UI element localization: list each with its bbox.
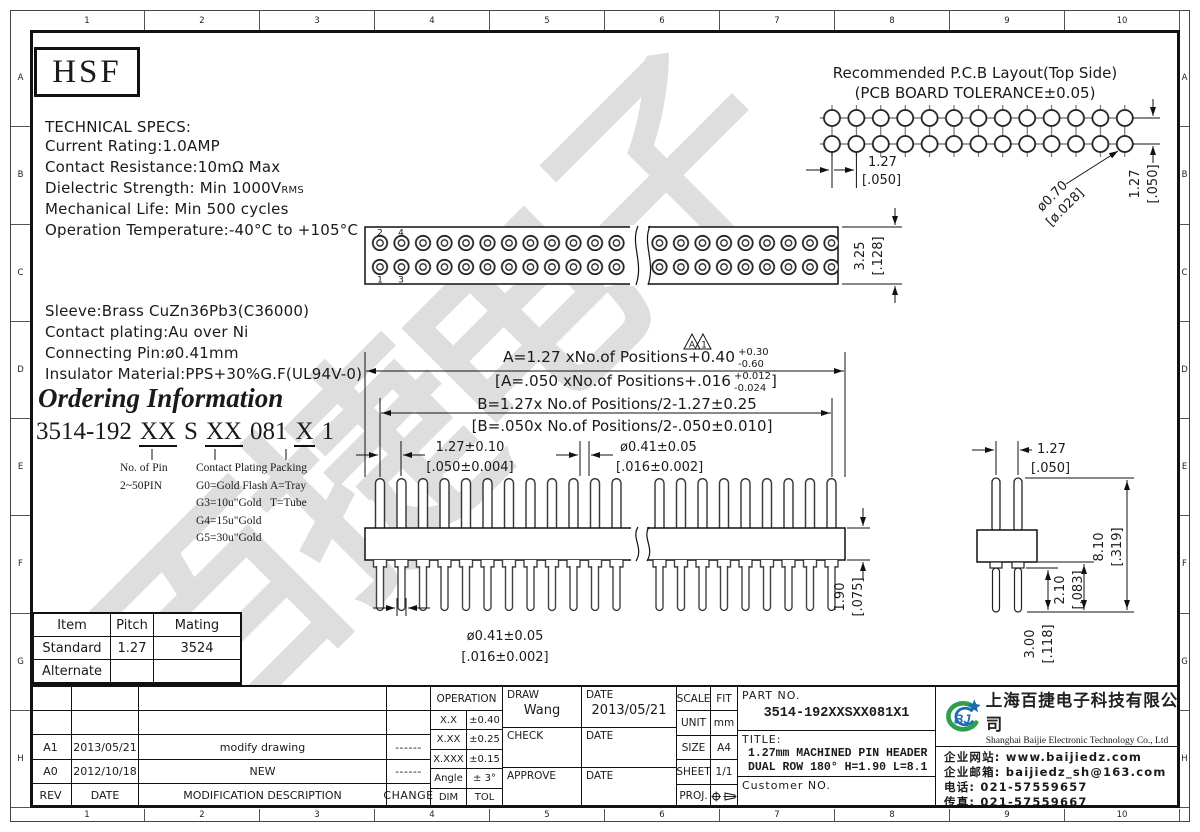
ruler-number: 5 [490,809,605,821]
side-total-dim-inch: [.319] [1110,527,1125,566]
material-line: Sleeve:Brass CuZn36Pb3(C36000) [45,301,362,322]
material-line: Connecting Pin:ø0.41mm [45,343,362,364]
part-no-value: 3514-192XXSXX081X1 [738,706,935,721]
tolerance-header: OPERATION [431,687,502,711]
ruler-number: 7 [720,809,835,821]
pcb-vpitch-dim: 1.27 [1128,170,1143,199]
tolerance-row: X.XX ±0.25 [431,730,502,749]
projection-symbol [711,785,737,808]
mating-header: Pitch [111,614,154,637]
ruler-letter: B [1180,127,1189,224]
revision-table: A1 2013/05/21 modify drawing ------ A0 2… [30,687,430,808]
ruler-number: 2 [145,11,260,30]
technical-specs-title: TECHNICAL SPECS: [45,118,358,137]
ordering-option: G3=10u"Gold [196,495,267,513]
signoff-block: DRAWWang DATE2013/05/21 CHECK DATE APPRO… [502,687,676,808]
hsf-logo-box: HSF [34,47,140,97]
date-label: DATE [586,770,613,782]
front-dia2-dim-inch: [.016±0.002] [461,650,548,665]
ruler-number: 8 [835,11,950,30]
customer-label: Customer NO. [742,779,831,792]
ruler-number: 3 [260,11,375,30]
side-pitch-dim: 1.27 [1037,442,1066,457]
hsf-logo-text: HSF [52,54,122,91]
formula-b-mm: B=1.27x No.of Positions/2-1.27±0.25 [477,395,757,413]
tolerance-row: DIM TOL [431,789,502,808]
part-title-line2: DUAL ROW 180° H=1.90 L=8.1 [748,761,927,775]
plan-height-dim: 3.25 [853,242,868,271]
part-number-row: PART NO. 3514-192XXSXX081X1 [738,687,935,731]
ruler-number: 8 [835,809,950,821]
front-pins-top-left [369,478,627,528]
pin-label-2: 2 [377,229,383,239]
company-contact-line: 电话: 021-57559657 [944,780,1180,795]
pn-code: 081 [250,418,288,445]
ruler-number: 4 [375,11,490,30]
ordering-option: G0=Gold Flash [196,478,267,496]
pin-label-4: 4 [398,229,404,239]
pcb-title-line2: (PCB BOARD TOLERANCE±0.05) [855,84,1096,102]
info-row: SIZE A4 [677,736,737,760]
spec-line: Mechanical Life: Min 500 cycles [45,200,358,221]
company-header: BJ 上海百捷电子科技有限公司 Shanghai Baijie Electron… [936,687,1180,747]
ruler-number: 1 [30,11,145,30]
pn-base: 3514-192 [36,418,132,445]
ruler-number: 6 [605,11,720,30]
company-logo-text: BJ [954,711,971,726]
formula-a-inch-sub: -0.024 [734,383,766,394]
check-label: CHECK [507,730,543,742]
pcb-vpitch-dim-inch: [.050] [1146,164,1161,203]
plan-view: 2 4 1 3 3.25 [.128] [365,208,902,303]
mating-header: Item [34,614,111,637]
pcb-hole-grid [820,105,1138,157]
pcb-hole-dim-group: ø0.70 [ø.028] [1031,174,1087,230]
revision-row: A1 2013/05/21 modify drawing ------ [30,735,430,759]
ruler-number: 1 [30,809,145,821]
ruler-right: ABCDEFGH [1180,30,1189,808]
date-label: DATE [586,730,613,742]
ordering-option: T=Tube [270,495,307,513]
front-pitch-dim: 1.27±0.10 [436,440,505,455]
front-view: 1.27±0.10 [.050±0.004] ø0.41±0.05 [.016±… [356,440,870,665]
pcb-title-line1: Recommended P.C.B Layout(Top Side) [833,64,1117,82]
front-body-dim-inch: [.075] [851,577,866,616]
mating-row: Standard 1.27 3524 [34,637,240,660]
revision-row: REV DATE MODIFICATION DESCRIPTION CHANGE [30,784,430,808]
ordering-option: G4=15u"Gold [196,513,267,531]
signoff-row-draw: DRAWWang DATE2013/05/21 [503,687,676,728]
front-body-dim: 1.90 [833,583,848,612]
ruler-letter: F [1180,516,1189,613]
mating-header: Mating [154,614,240,637]
mating-table: Item Pitch Mating Standard 1.27 3524 Alt… [32,612,242,685]
ordering-option: No. of Pin [120,460,168,478]
ordering-option: Packing [270,460,307,478]
pcb-layout-view: Recommended P.C.B Layout(Top Side) (PCB … [806,64,1161,230]
draw-label: DRAW [507,689,539,701]
part-no-label: PART NO. [742,689,800,702]
projection-symbol-icon [711,790,737,803]
ruler-letter: C [1180,225,1189,322]
ruler-number: 2 [145,809,260,821]
plan-pin-grid-right [649,231,839,279]
tolerance-row: X.X ±0.40 [431,711,502,730]
ruler-letter: G [1180,614,1189,711]
side-view: 1.27 [.050] 8.10 [.319] 2.10 [.083] 3.00… [972,441,1134,664]
ordering-col-packing: PackingA=TrayT=Tube [270,460,307,513]
part-block: PART NO. 3514-192XXSXX081X1 TITLE: 1.27m… [737,687,935,808]
ruler-top: 12345678910 [30,11,1180,30]
ruler-letter: F [11,516,30,613]
ordering-option: 2~50PIN [120,478,168,496]
formula-a-sup: +0.30 [738,347,769,358]
front-dia2-dim: ø0.41±0.05 [467,629,544,644]
approve-label: APPROVE [507,770,556,782]
revision-row [30,711,430,735]
spec-line: Operation Temperature:-40°C to +105°C [45,221,358,242]
customer-row: Customer NO. [738,777,935,808]
front-pins-top-right [649,478,841,528]
tolerance-row: X.XXX ±0.15 [431,750,502,769]
ruler-letter: A [11,30,30,127]
material-line: Insulator Material:PPS+30%G.F(UL94V-0) [45,364,362,385]
title-block: A1 2013/05/21 modify drawing ------ A0 2… [30,685,1180,808]
pin-label-1: 1 [377,276,383,286]
ruler-number: 9 [950,809,1065,821]
tolerance-row: Angle ± 3° [431,769,502,788]
ordering-connectors [152,449,286,460]
ruler-letter: H [11,711,30,808]
formula-a-sub: -0.60 [738,359,764,370]
pin-label-3: 3 [398,276,404,286]
company-name-en: Shanghai Baijie Electronic Technology Co… [986,736,1180,746]
pn-sep: S [184,418,198,445]
materials-specs: Sleeve:Brass CuZn36Pb3(C36000)Contact pl… [45,301,362,385]
info-row: UNIT mm [677,711,737,735]
ruler-number: 5 [490,11,605,30]
signoff-row-check: CHECK DATE [503,728,676,769]
side-total-dim: 8.10 [1092,533,1107,562]
front-dia-dim-inch: [.016±0.002] [616,460,703,475]
technical-specs: TECHNICAL SPECS: Current Rating:1.0AMPCo… [45,118,358,242]
ordering-col-plating: Contact PlatingG0=Gold FlashG3=10u"GoldG… [196,460,267,548]
ordering-title: Ordering Information [38,383,283,414]
pcb-pitch-dim: 1.27 [868,155,897,170]
pn-tail: 1 [322,418,335,445]
ruler-bottom: 12345678910 [30,809,1180,821]
spec-line: Contact Resistance:10mΩ Max [45,158,358,179]
ruler-number: 9 [950,11,1065,30]
side-pitch-dim-inch: [.050] [1031,461,1070,476]
company-contact-line: 企业邮箱: baijiedz_sh@163.com [944,765,1180,780]
pn-pins: XX [139,418,177,447]
mating-header-row: Item Pitch Mating [34,614,240,637]
spec-line: Current Rating:1.0AMP [45,137,358,158]
ruler-left: ABCDEFGH [11,30,30,808]
ruler-letter: E [1180,419,1189,516]
formula-a-mm: A=1.27 xNo.of Positions+0.40 [503,348,735,366]
ruler-letter: B [11,127,30,224]
company-contact-line: 企业网站: www.baijiedz.com [944,750,1180,765]
info-row: SCALE FIT [677,687,737,711]
side-tail-b-dim-inch: [.118] [1041,624,1056,663]
side-tail-a-dim: 2.10 [1053,576,1068,605]
revision-row [30,687,430,711]
ruler-number: 4 [375,809,490,821]
pcb-pitch-dim-inch: [.050] [862,173,901,188]
ruler-number: 6 [605,809,720,821]
signoff-row-approve: APPROVE DATE [503,768,676,808]
draw-date: 2013/05/21 [582,703,676,718]
material-line: Contact plating:Au over Ni [45,322,362,343]
ruler-number: 7 [720,11,835,30]
ordering-col-pins: No. of Pin2~50PIN [120,460,168,495]
tolerance-block: OPERATION X.X ±0.40 X.XX ±0.25 X.XXX ±0.… [430,687,502,808]
ruler-number: 3 [260,809,375,821]
ruler-letter: D [1180,322,1189,419]
info-block: SCALE FIT UNIT mm SIZE A4 SHEET 1/1 PROJ… [676,687,737,808]
ruler-letter: E [11,419,30,516]
part-title-row: TITLE: 1.27mm MACHINED PIN HEADER DUAL R… [738,731,935,777]
ordering-option: Contact Plating [196,460,267,478]
info-row-projection: PROJ. [677,785,737,808]
mating-row: Alternate [34,660,240,683]
company-contact-line: 传真: 021-57559667 [944,795,1180,810]
date-label: DATE [586,689,613,701]
front-pins-bottom-right [649,566,841,612]
company-contacts: 企业网站: www.baijiedz.com企业邮箱: baijiedz_sh@… [936,747,1180,810]
ruler-letter: H [1180,711,1189,808]
formula-a-inch: [A=.050 xNo.of Positions+.016 [495,372,731,390]
company-block: BJ 上海百捷电子科技有限公司 Shanghai Baijie Electron… [935,687,1180,808]
ordering-option: G5=30u"Gold [196,530,267,548]
spec-line: Dielectric Strength: Min 1000VRMS [45,179,358,200]
front-pins-bottom-left [369,566,627,612]
side-tail-b-dim: 3.00 [1023,630,1038,659]
formula-b-inch: [B=.050x No.of Positions/2-.050±0.010] [472,417,773,435]
ruler-letter: G [11,614,30,711]
plan-height-dim-inch: [.128] [871,236,886,275]
part-title-line1: 1.27mm MACHINED PIN HEADER [748,747,927,761]
draw-name: Wang [503,703,581,718]
side-tail-a-dim-inch: [.083] [1071,570,1086,609]
formula-a-bracket: ] [771,372,777,390]
ruler-number: 10 [1065,809,1180,821]
company-logo-icon: BJ [941,697,982,737]
front-dia-dim: ø0.41±0.05 [620,440,697,455]
revision-row: A0 2012/10/18 NEW ------ [30,760,430,784]
ruler-letter: A [1180,30,1189,127]
ruler-letter: C [11,225,30,322]
ordering-part-number: 3514-192XXSXX081X1 [36,418,341,446]
plan-pin-grid-left [369,231,627,279]
title-label: TITLE: [742,733,781,746]
ruler-letter: D [11,322,30,419]
ruler-number: 10 [1065,11,1180,30]
info-row: SHEET 1/1 [677,760,737,784]
projection-label: PROJ. [677,785,711,808]
pn-plating: XX [205,418,243,447]
front-pitch-dim-inch: [.050±0.004] [426,460,513,475]
company-name-cn: 上海百捷电子科技有限公司 [986,687,1180,735]
formula-a-inch-sup: +0.012 [734,371,771,382]
ordering-option: A=Tray [270,478,307,496]
dimension-formulas: A 1 A=1.27 xNo.of Positions+0.40 +0.30 -… [365,334,845,477]
pn-packing: X [294,418,314,447]
